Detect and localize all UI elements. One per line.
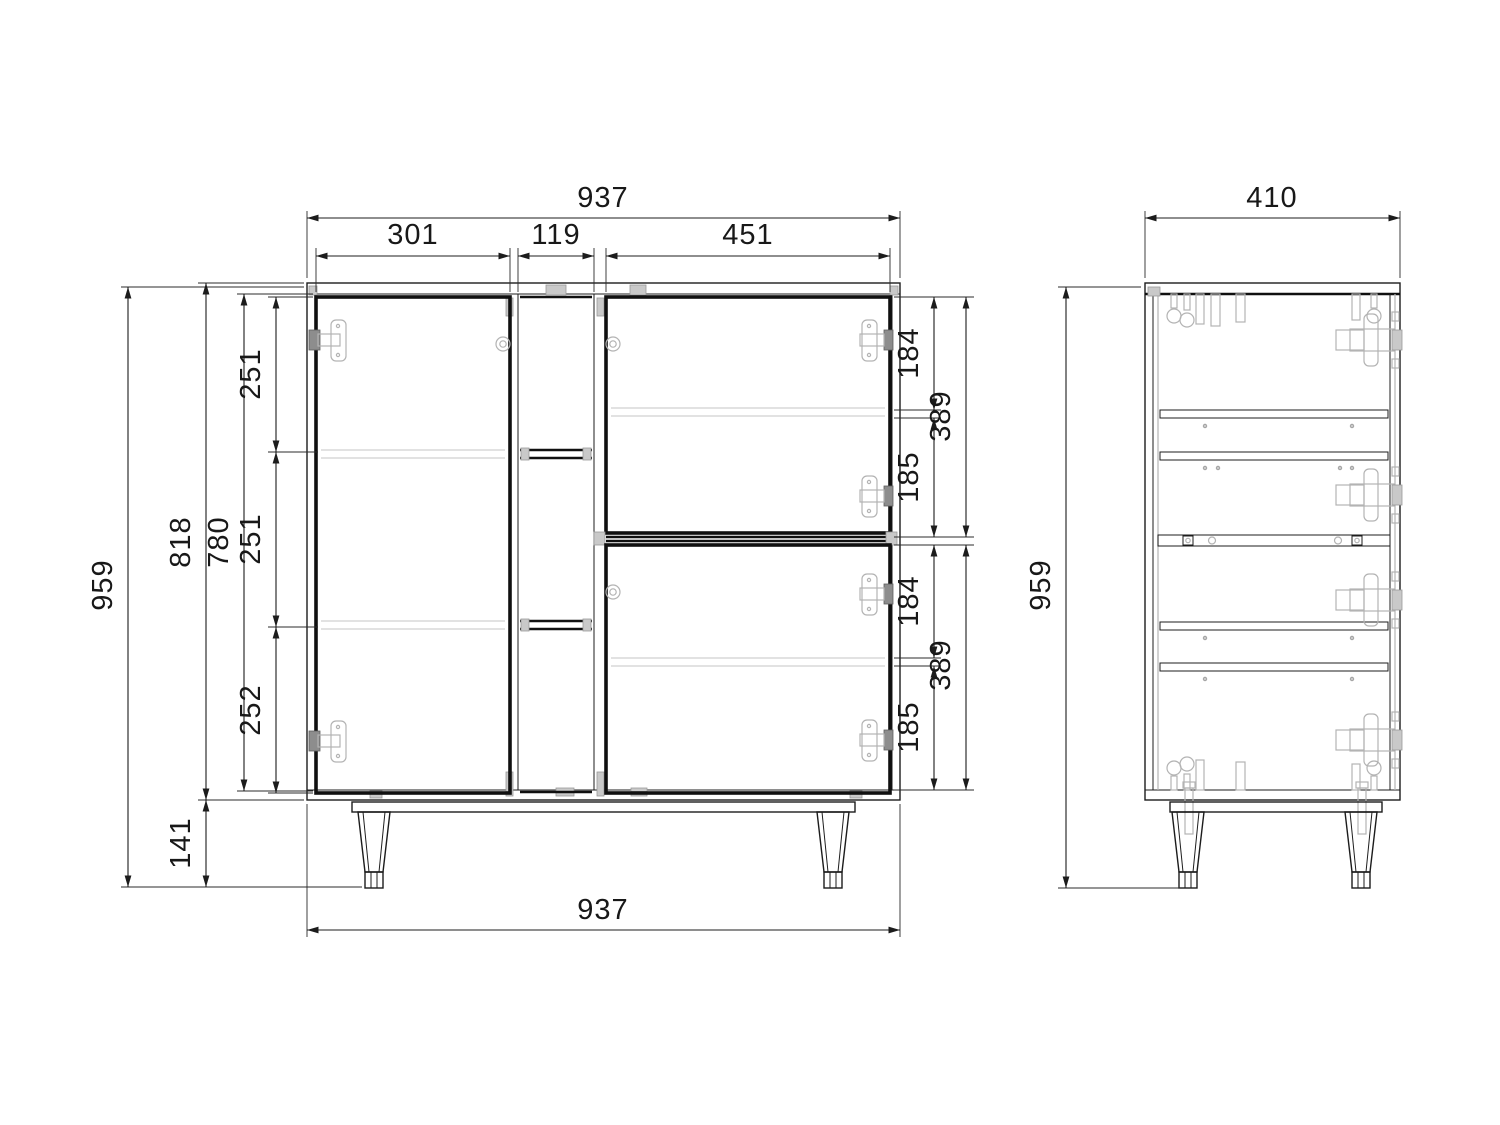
side-hinges xyxy=(1336,312,1402,768)
front-view: 937 301 119 451 959 xyxy=(87,182,974,937)
dim-label: 780 xyxy=(203,516,235,567)
dim-label: 410 xyxy=(1246,182,1297,214)
technical-drawing: 937 301 119 451 959 xyxy=(0,0,1500,1125)
dim-label: 184 xyxy=(893,575,925,626)
dim-label: 251 xyxy=(235,348,267,399)
knob-icon xyxy=(606,337,620,351)
dim-front-right-chain: 184 185 184 185 xyxy=(893,297,974,790)
partition-connector xyxy=(597,298,604,316)
dim-label: 389 xyxy=(925,390,957,441)
dim-front-compartments: 251 251 252 xyxy=(235,297,318,793)
knob-icon xyxy=(606,585,620,599)
shelf-support xyxy=(521,619,529,631)
leg xyxy=(1345,812,1377,888)
dim-label: 451 xyxy=(722,219,773,251)
divider-connector xyxy=(886,532,897,545)
leg-bolt xyxy=(1356,782,1368,788)
dim-label: 937 xyxy=(577,894,628,926)
side-bottom-fasteners xyxy=(1167,757,1381,834)
divider-connector xyxy=(594,532,605,545)
side-top-fasteners xyxy=(1167,294,1381,327)
dim-label: 251 xyxy=(235,513,267,564)
dim-label: 252 xyxy=(235,684,267,735)
hinge-icon xyxy=(1336,712,1402,768)
hinge-icon xyxy=(1336,467,1402,523)
drawing-canvas: 937 301 119 451 959 xyxy=(0,0,1500,1125)
dim-front-section-middle: 119 xyxy=(518,219,594,292)
dim-front-section-left: 301 xyxy=(316,219,510,292)
hinge-icon xyxy=(860,476,893,517)
front-right-top-door xyxy=(606,297,893,533)
leg-bolt xyxy=(1358,788,1366,834)
dim-front-right-totals: 389 389 xyxy=(925,297,966,790)
dim-side-depth: 410 xyxy=(1145,182,1400,278)
dim-front-total-width-bottom: 937 xyxy=(307,804,900,937)
dim-front-total-height: 959 xyxy=(87,287,362,887)
shelf-support xyxy=(521,448,529,460)
corner-fitting xyxy=(1148,287,1160,296)
knob-icon xyxy=(496,337,510,351)
dim-label: 184 xyxy=(893,327,925,378)
leg-bolt xyxy=(1183,782,1195,788)
dim-label: 185 xyxy=(893,451,925,502)
front-middle-shelves xyxy=(520,297,592,792)
hinge-icon xyxy=(860,720,893,761)
dim-label: 959 xyxy=(87,559,119,610)
leg xyxy=(358,812,390,888)
cam-lock-fitting xyxy=(630,285,646,295)
hinge-icon xyxy=(860,574,893,615)
cam-lock-fitting xyxy=(546,285,566,295)
dim-front-leg-height: 141 xyxy=(165,800,206,887)
hinge-icon xyxy=(1336,572,1402,628)
dim-label: 818 xyxy=(165,516,197,567)
hinge-icon xyxy=(860,320,893,361)
side-view: 410 959 xyxy=(1025,182,1402,888)
dim-label: 301 xyxy=(387,219,438,251)
shelf-support xyxy=(583,619,591,631)
dim-label: 119 xyxy=(531,219,580,251)
dim-label: 141 xyxy=(165,817,197,868)
partition-connector xyxy=(597,772,604,796)
dim-label: 185 xyxy=(893,701,925,752)
side-base xyxy=(1170,802,1382,888)
leg xyxy=(1172,812,1204,888)
front-left-door xyxy=(309,297,510,793)
dim-label: 389 xyxy=(925,639,957,690)
dim-side-total-height: 959 xyxy=(1025,287,1180,888)
leg xyxy=(817,812,849,888)
leg-bolt xyxy=(1185,788,1193,834)
dim-label: 937 xyxy=(577,182,628,214)
side-center-rail xyxy=(1158,535,1390,546)
dim-front-section-right: 451 xyxy=(606,219,890,292)
front-right-bottom-door xyxy=(606,545,893,793)
corner-fitting xyxy=(890,286,898,295)
front-base xyxy=(352,802,855,888)
dim-label: 959 xyxy=(1025,559,1057,610)
shelf-support xyxy=(583,448,591,460)
